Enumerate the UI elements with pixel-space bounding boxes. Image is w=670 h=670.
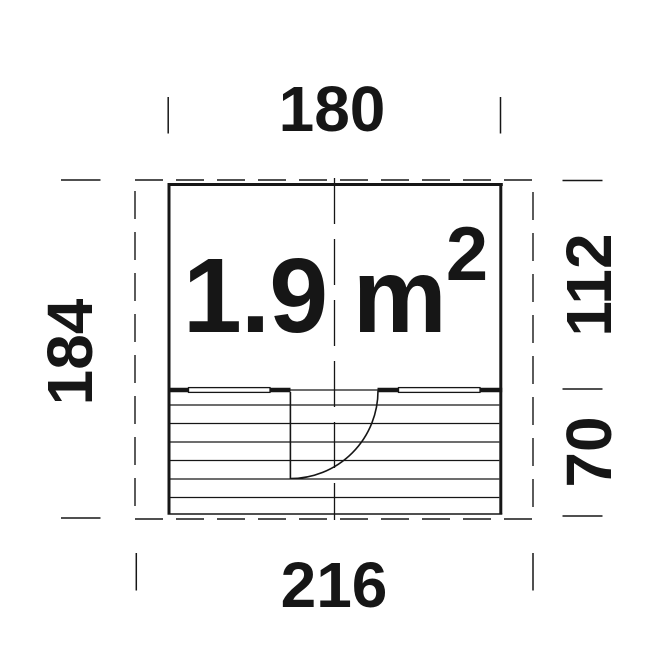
dimension-label-bottom-width: 216: [281, 553, 388, 617]
floor-area-value: 1.9: [183, 237, 327, 355]
dimension-label-right-lower-height: 70: [557, 416, 621, 487]
window-right: [399, 388, 481, 393]
floor-plan-page: 180 184 112 70 216 1.9m2: [0, 0, 670, 670]
dimension-label-left-height: 184: [38, 299, 102, 406]
dimension-label-right-upper-height: 112: [557, 233, 621, 336]
floor-area-exponent: 2: [446, 217, 487, 293]
dimension-label-top-width: 180: [279, 77, 386, 141]
floor-area-unit: m: [353, 237, 446, 355]
window-left: [189, 388, 271, 393]
floor-area-label: 1.9m2: [183, 243, 487, 349]
